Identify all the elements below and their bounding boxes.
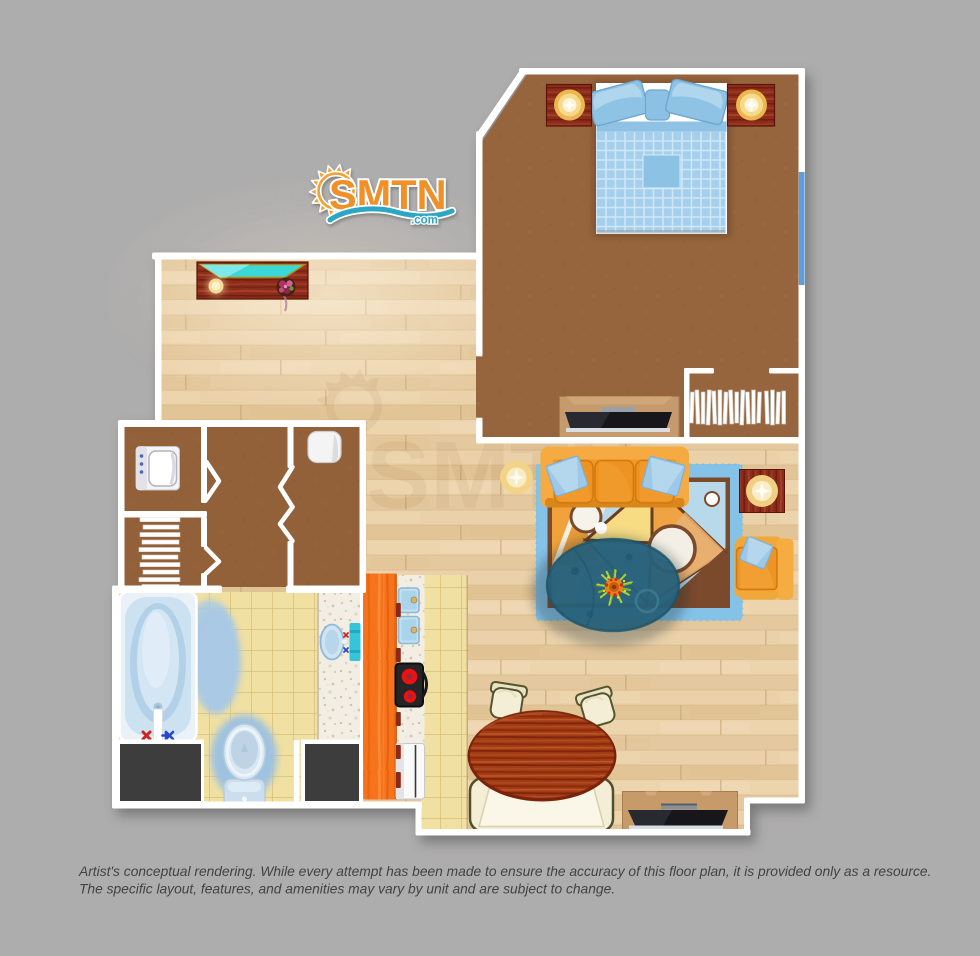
svg-text:.com: .com (411, 215, 438, 227)
svg-text:The specific layout, features,: The specific layout, features, and ameni… (79, 882, 615, 897)
svg-text:Artist's conceptual rendering.: Artist's conceptual rendering. While eve… (78, 864, 931, 879)
